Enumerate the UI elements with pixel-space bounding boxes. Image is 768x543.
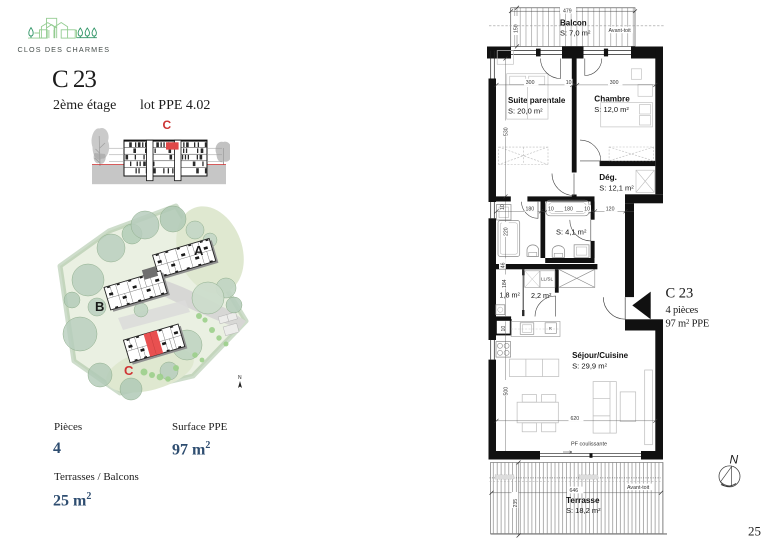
svg-text:S: 29,9 m2: S: 29,9 m2: [572, 362, 608, 371]
svg-text:Terrasse: Terrasse: [566, 496, 600, 505]
svg-text:10: 10: [548, 207, 554, 213]
svg-text:220: 220: [503, 227, 509, 236]
svg-text:620: 620: [571, 416, 580, 422]
svg-text:R: R: [549, 326, 552, 331]
svg-text:530: 530: [503, 127, 509, 136]
svg-text:500: 500: [503, 387, 509, 396]
svg-text:10: 10: [500, 204, 506, 210]
svg-text:A: A: [194, 243, 204, 258]
svg-text:Avant-toit: Avant-toit: [627, 485, 650, 491]
svg-text:180: 180: [526, 207, 535, 213]
svg-text:Séjour/Cuisine: Séjour/Cuisine: [572, 351, 629, 360]
svg-text:2,2 m2: 2,2 m2: [531, 291, 552, 300]
svg-text:46: 46: [501, 262, 507, 268]
svg-text:300: 300: [526, 80, 535, 86]
svg-text:479: 479: [563, 9, 572, 15]
svg-text:Dég.: Dég.: [599, 173, 617, 182]
svg-text:10: 10: [501, 326, 507, 332]
svg-text:4 pièces: 4 pièces: [666, 305, 699, 316]
svg-text:N: N: [730, 452, 739, 466]
svg-text:10: 10: [584, 207, 590, 213]
svg-text:S: 18,2 m2: S: 18,2 m2: [566, 506, 601, 515]
svg-text:180: 180: [564, 207, 573, 213]
svg-text:235: 235: [513, 499, 519, 508]
svg-text:Avant-toit: Avant-toit: [609, 28, 632, 34]
svg-text:N: N: [238, 375, 242, 381]
svg-text:646: 646: [570, 488, 579, 494]
svg-text:300: 300: [610, 80, 619, 86]
svg-text:Chambre: Chambre: [594, 95, 630, 104]
svg-text:184: 184: [502, 279, 508, 288]
svg-text:PF coulissante: PF coulissante: [571, 442, 607, 448]
svg-text:C 23: C 23: [666, 286, 694, 302]
svg-text:1,8 m2: 1,8 m2: [500, 291, 521, 300]
svg-text:S: 20,0 m2: S: 20,0 m2: [508, 107, 543, 116]
svg-text:B: B: [95, 299, 104, 314]
svg-text:C: C: [163, 118, 172, 132]
svg-text:LL/SL: LL/SL: [541, 277, 553, 282]
svg-text:97 m2 PPE: 97 m2 PPE: [666, 319, 710, 330]
svg-text:C: C: [124, 363, 134, 378]
svg-text:25: 25: [748, 523, 761, 538]
svg-text:120: 120: [606, 207, 615, 213]
svg-text:S: 7,0 m2: S: 7,0 m2: [560, 28, 591, 37]
svg-text:S: 12,0 m2: S: 12,0 m2: [594, 105, 629, 114]
svg-text:Suite parentale: Suite parentale: [508, 96, 566, 105]
svg-text:S: 12,1 m2: S: 12,1 m2: [599, 184, 634, 193]
svg-text:10: 10: [566, 80, 572, 86]
